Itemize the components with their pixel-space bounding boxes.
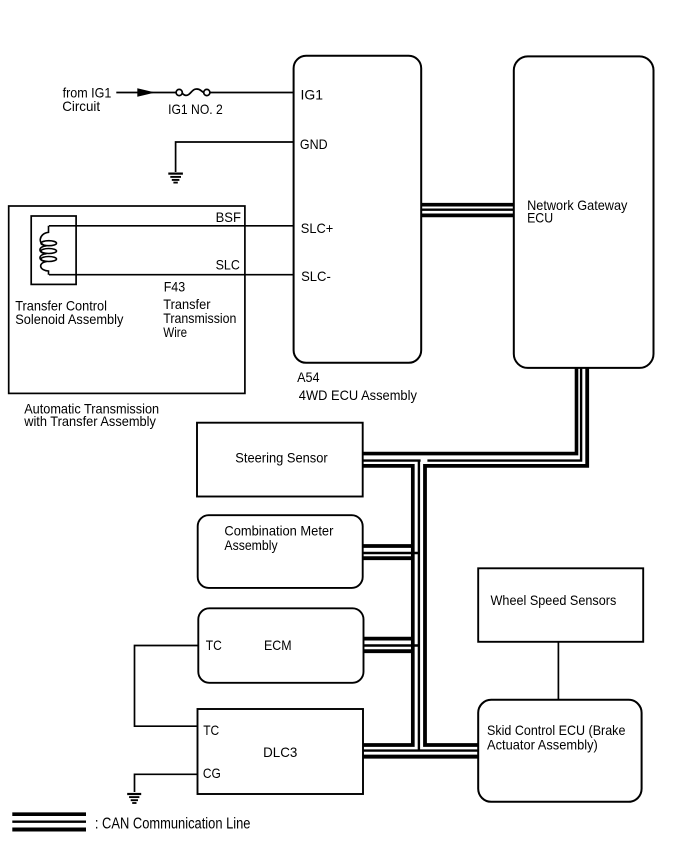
svg-text:with Transfer Assembly: with Transfer Assembly <box>23 413 156 429</box>
svg-text:TC: TC <box>206 637 222 653</box>
svg-text:SLC-: SLC- <box>301 268 331 284</box>
svg-text:Actuator Assembly): Actuator Assembly) <box>487 736 598 752</box>
svg-text:SLC: SLC <box>216 256 240 272</box>
svg-text:BSF: BSF <box>216 209 241 225</box>
svg-text:Steering Sensor: Steering Sensor <box>235 450 328 466</box>
svg-text:: CAN Communication Line: : CAN Communication Line <box>95 815 251 832</box>
svg-text:GND: GND <box>300 136 328 152</box>
svg-text:DLC3: DLC3 <box>263 744 297 760</box>
svg-text:TC: TC <box>203 722 219 738</box>
svg-text:SLC+: SLC+ <box>301 220 334 236</box>
svg-text:4WD ECU Assembly: 4WD ECU Assembly <box>299 387 417 403</box>
svg-text:IG1: IG1 <box>301 87 324 103</box>
svg-text:F43: F43 <box>164 279 186 295</box>
svg-text:IG1 NO. 2: IG1 NO. 2 <box>168 101 223 117</box>
svg-text:Circuit: Circuit <box>62 98 100 114</box>
svg-text:ECM: ECM <box>264 637 292 653</box>
svg-text:CG: CG <box>203 765 221 781</box>
svg-text:ECU: ECU <box>527 210 553 226</box>
svg-text:Solenoid Assembly: Solenoid Assembly <box>15 311 123 327</box>
svg-text:Skid Control ECU (Brake: Skid Control ECU (Brake <box>487 722 626 738</box>
svg-text:A54: A54 <box>297 369 320 385</box>
svg-text:Combination Meter: Combination Meter <box>224 522 333 538</box>
svg-text:Wheel Speed Sensors: Wheel Speed Sensors <box>491 592 617 608</box>
svg-text:Wire: Wire <box>163 324 187 340</box>
svg-text:Assembly: Assembly <box>224 537 277 553</box>
